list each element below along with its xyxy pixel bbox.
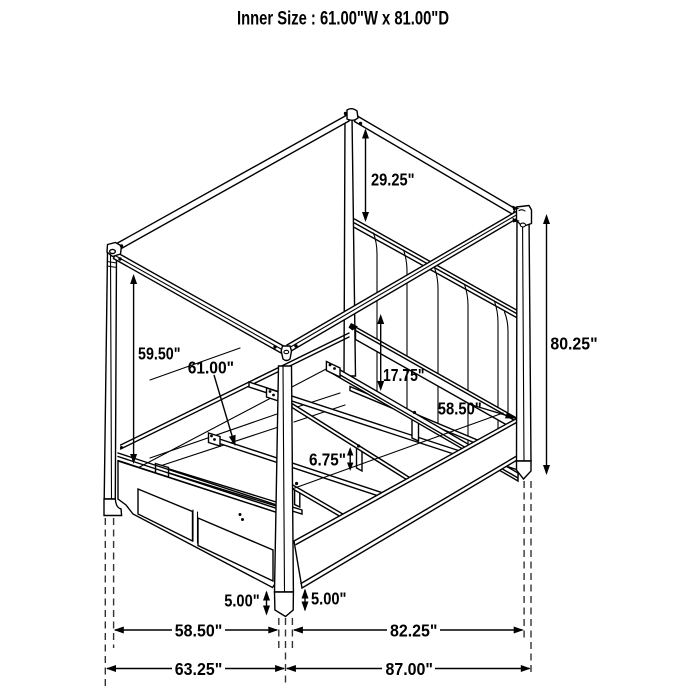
svg-text:29.25": 29.25" <box>371 170 415 190</box>
svg-text:80.25": 80.25" <box>550 334 597 354</box>
svg-text:5.00": 5.00" <box>224 591 260 611</box>
svg-text:Inner Size : 61.00"W x 81.00"D: Inner Size : 61.00"W x 81.00"D <box>237 9 449 30</box>
svg-text:5.00": 5.00" <box>311 589 347 609</box>
svg-text:59.50": 59.50" <box>138 344 181 364</box>
svg-text:87.00": 87.00" <box>386 659 434 679</box>
svg-text:17.75": 17.75" <box>383 365 425 385</box>
svg-text:6.75": 6.75" <box>309 450 346 470</box>
svg-text:63.25": 63.25" <box>175 659 223 679</box>
svg-text:58.50": 58.50" <box>175 621 223 641</box>
svg-text:82.25": 82.25" <box>390 621 438 641</box>
svg-text:61.00": 61.00" <box>188 358 234 378</box>
svg-text:58.50": 58.50" <box>438 399 482 419</box>
